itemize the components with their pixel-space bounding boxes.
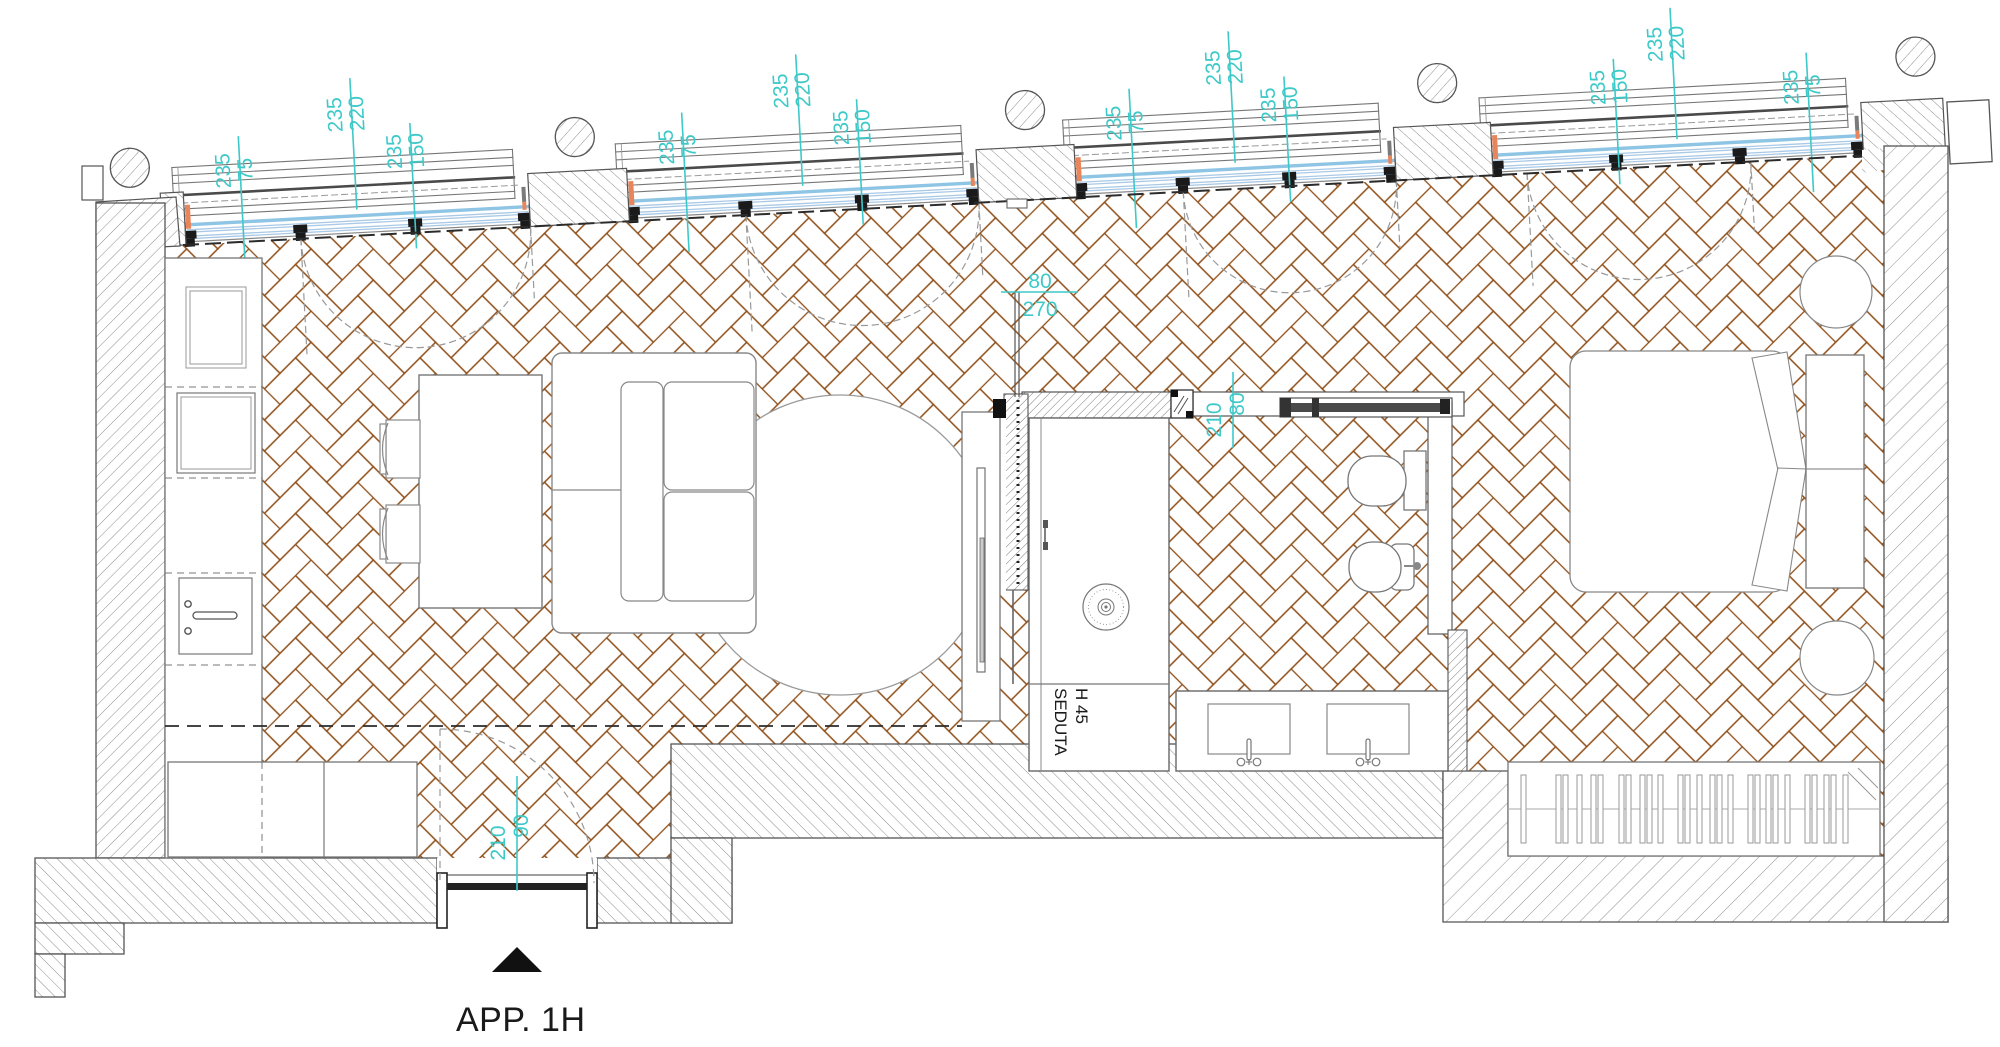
svg-text:235: 235 <box>1779 69 1804 105</box>
svg-text:75: 75 <box>1124 110 1148 135</box>
svg-text:75: 75 <box>677 134 701 159</box>
svg-text:150: 150 <box>1278 86 1303 122</box>
svg-text:235: 235 <box>211 153 236 189</box>
svg-text:235: 235 <box>1257 87 1282 123</box>
svg-text:80: 80 <box>1028 270 1051 293</box>
svg-text:150: 150 <box>851 109 876 145</box>
svg-text:150: 150 <box>404 132 429 168</box>
svg-text:220: 220 <box>345 95 370 131</box>
svg-text:210: 210 <box>1203 402 1226 437</box>
svg-text:75: 75 <box>1801 74 1825 99</box>
svg-text:H 45: H 45 <box>1072 688 1091 724</box>
svg-text:235: 235 <box>829 110 854 146</box>
svg-text:235: 235 <box>323 97 348 133</box>
svg-text:220: 220 <box>1223 49 1248 85</box>
svg-text:150: 150 <box>1608 68 1633 104</box>
svg-text:75: 75 <box>233 157 257 182</box>
svg-text:235: 235 <box>382 134 407 170</box>
svg-text:235: 235 <box>1643 26 1668 62</box>
svg-text:220: 220 <box>791 72 816 108</box>
svg-text:APP. 1H: APP. 1H <box>456 1001 586 1039</box>
svg-text:235: 235 <box>1102 105 1127 141</box>
svg-text:SEDUTA: SEDUTA <box>1051 688 1070 756</box>
svg-text:235: 235 <box>1201 50 1226 86</box>
svg-text:90: 90 <box>510 814 533 837</box>
svg-text:235: 235 <box>1586 69 1611 105</box>
svg-text:220: 220 <box>1665 25 1690 61</box>
svg-text:235: 235 <box>769 73 794 109</box>
svg-text:235: 235 <box>655 129 680 165</box>
svg-text:210: 210 <box>487 825 510 860</box>
svg-text:80: 80 <box>1226 392 1249 415</box>
svg-text:270: 270 <box>1022 298 1057 321</box>
